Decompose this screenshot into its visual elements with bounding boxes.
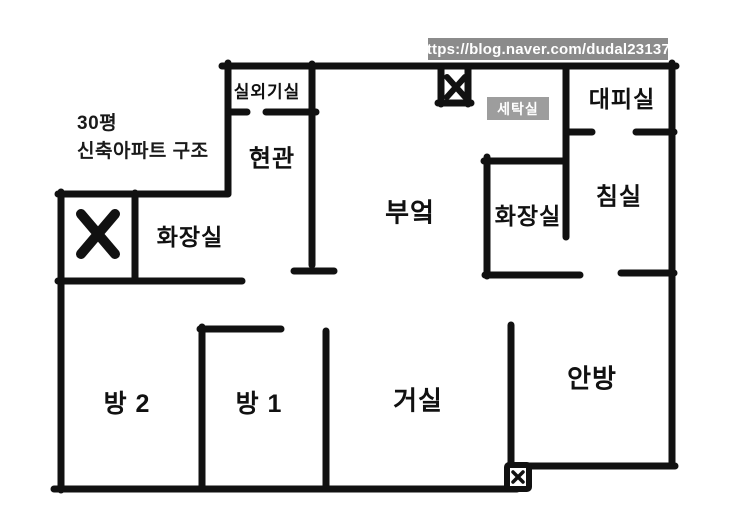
x-box-top	[438, 66, 471, 104]
room-label-master-bedroom: 안방	[567, 359, 617, 396]
x-mark-icon	[447, 77, 465, 97]
room-label-living-room: 거실	[393, 381, 443, 418]
plan-annotation-line1: 30평	[77, 110, 209, 138]
floorplan-canvas: https://blog.naver.com/dudal231379 30평 신…	[0, 0, 743, 513]
room-label-bedroom: 침실	[596, 177, 642, 212]
x-box-bottom	[504, 462, 532, 492]
room-label-room-1: 방 1	[236, 384, 283, 420]
watermark-url-badge: https://blog.naver.com/dudal231379	[428, 38, 668, 60]
laundry-room-badge: 세탁실	[487, 97, 549, 120]
floorplan-walls	[0, 0, 743, 513]
room-label-entrance: 현관	[249, 139, 295, 174]
x-mark-icon	[81, 214, 115, 254]
room-label-room-2: 방 2	[104, 384, 151, 420]
room-label-bathroom-right: 화장실	[495, 197, 561, 231]
plan-annotation: 30평 신축아파트 구조	[77, 110, 209, 166]
plan-annotation-line2: 신축아파트 구조	[77, 138, 209, 166]
room-label-bathroom-left: 화장실	[157, 218, 223, 252]
room-label-outdoor-unit-room: 실외기실	[234, 78, 301, 103]
room-label-shelter-room: 대피실	[589, 80, 655, 114]
room-label-kitchen: 부엌	[385, 193, 435, 230]
